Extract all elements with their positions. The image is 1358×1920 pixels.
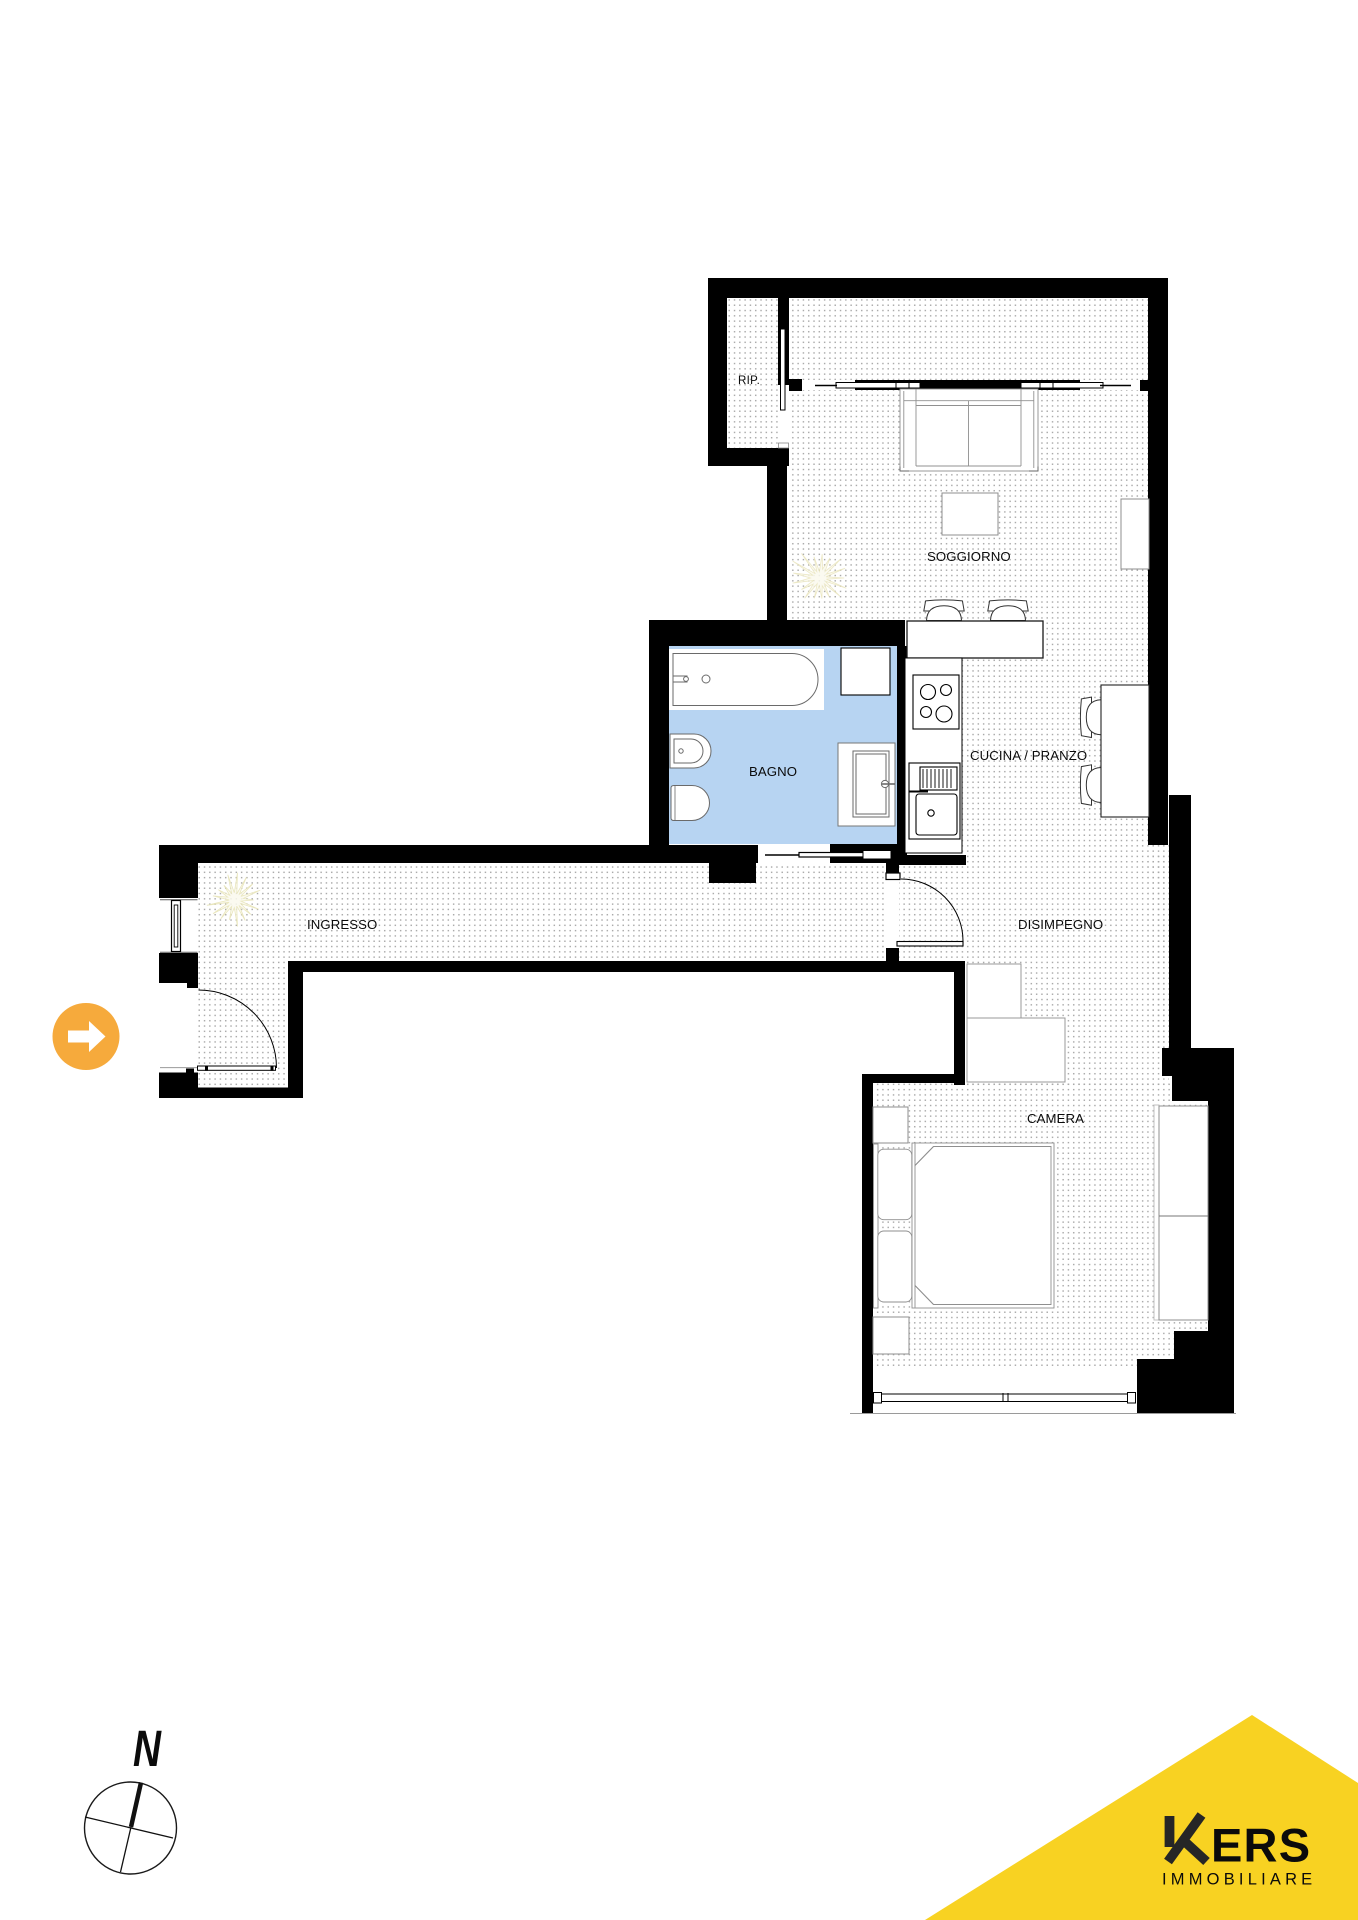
svg-text:RIP.: RIP.	[738, 375, 760, 387]
svg-text:IMMOBILIARE: IMMOBILIARE	[1162, 1871, 1316, 1889]
svg-text:SOGGIORNO: SOGGIORNO	[927, 549, 1011, 564]
svg-text:ERS: ERS	[1211, 1819, 1311, 1872]
svg-text:CUCINA / PRANZO: CUCINA / PRANZO	[970, 748, 1087, 763]
svg-text:CAMERA: CAMERA	[1027, 1111, 1084, 1126]
svg-text:INGRESSO: INGRESSO	[307, 917, 377, 932]
svg-text:N: N	[133, 1720, 162, 1777]
svg-text:DISIMPEGNO: DISIMPEGNO	[1018, 917, 1103, 932]
svg-text:BAGNO: BAGNO	[749, 764, 797, 779]
